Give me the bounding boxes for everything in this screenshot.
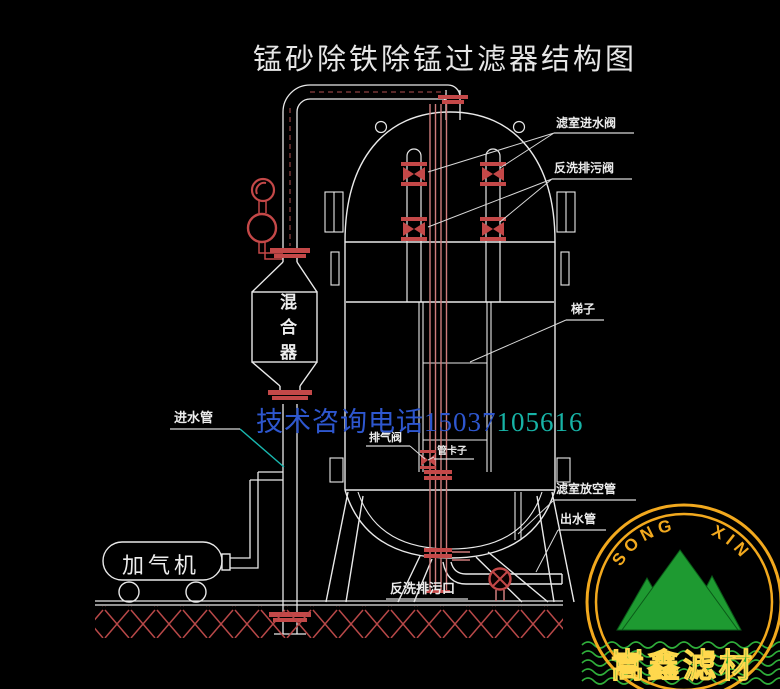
center-red-pipes bbox=[430, 104, 470, 590]
ground-line bbox=[95, 601, 563, 605]
label-ladder: 梯子 bbox=[571, 303, 595, 316]
cad-diagram-canvas: SONG XIN 锰砂除铁除锰过滤器结构图 滤室进水阀 反洗排污阀 梯子 滤室放… bbox=[0, 0, 780, 689]
company-name: 嵩鑫滤材 bbox=[611, 639, 755, 687]
watermark-phone-suffix: 105616 bbox=[497, 407, 584, 437]
watermark-phone-prefix: 技术咨询电话15037 bbox=[256, 407, 497, 437]
pressure-gauge-icon bbox=[248, 179, 283, 259]
label-backwash-drain-valve: 反洗排污阀 bbox=[554, 162, 614, 175]
leader-lines bbox=[410, 133, 566, 572]
aerator-label: 加气机 bbox=[122, 548, 200, 580]
page-title: 锰砂除铁除锰过滤器结构图 bbox=[253, 36, 637, 78]
mixer-label: 混合器 bbox=[275, 293, 299, 373]
label-chamber-vent-pipe: 滤室放空管 bbox=[556, 483, 616, 496]
label-pipe-clamp: 管卡子 bbox=[437, 446, 467, 457]
label-outlet-pipe: 出水管 bbox=[560, 513, 596, 526]
label-inlet-pipe: 进水管 bbox=[174, 411, 213, 425]
label-filter-inlet-valve: 滤室进水阀 bbox=[556, 117, 616, 130]
label-backwash-drain-outlet: 反洗排污口 bbox=[390, 582, 455, 596]
filter-vessel bbox=[325, 112, 575, 602]
ground-hatch bbox=[95, 606, 563, 638]
contact-watermark: 技术咨询电话15037105616 bbox=[256, 400, 584, 439]
outlet-valve-icon bbox=[490, 569, 511, 602]
logo-mountains-icon bbox=[617, 550, 741, 630]
